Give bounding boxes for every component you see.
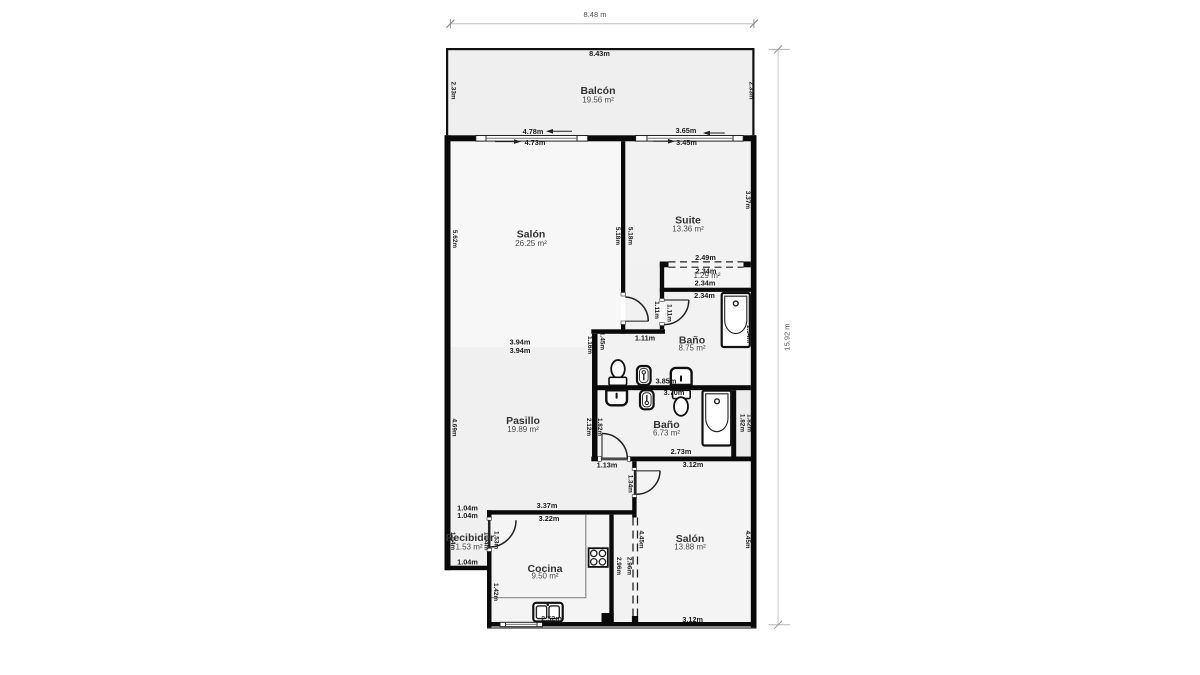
svg-text:1.54m: 1.54m (745, 325, 752, 343)
svg-text:4.73m: 4.73m (525, 138, 546, 147)
svg-text:1.53m: 1.53m (493, 531, 500, 549)
svg-text:8.75 m²: 8.75 m² (678, 344, 705, 353)
svg-text:1.11m: 1.11m (653, 301, 660, 319)
svg-text:2.34m: 2.34m (694, 291, 715, 300)
svg-text:9.50 m²: 9.50 m² (531, 572, 558, 581)
svg-text:4.78m: 4.78m (523, 127, 544, 136)
svg-text:13.36 m²: 13.36 m² (672, 225, 704, 234)
svg-text:4.45m: 4.45m (638, 530, 645, 548)
svg-text:1.13m: 1.13m (597, 461, 618, 470)
svg-text:2.33m: 2.33m (748, 81, 755, 99)
svg-text:19.89 m²: 19.89 m² (507, 425, 539, 434)
svg-text:1.04m: 1.04m (449, 532, 456, 550)
svg-text:2.33m: 2.33m (450, 81, 457, 99)
svg-text:3.22m: 3.22m (539, 514, 560, 523)
svg-text:4.45m: 4.45m (744, 530, 751, 548)
svg-text:3.37m: 3.37m (537, 501, 558, 510)
svg-text:19.56 m²: 19.56 m² (582, 96, 614, 105)
svg-text:2.96m: 2.96m (626, 557, 633, 575)
svg-text:2.73m: 2.73m (671, 447, 692, 456)
svg-text:1.82m: 1.82m (596, 418, 603, 436)
svg-text:6.73 m²: 6.73 m² (653, 429, 680, 438)
svg-text:3.37m: 3.37m (744, 191, 751, 209)
svg-text:1.82m: 1.82m (739, 414, 746, 432)
svg-text:5.62m: 5.62m (451, 230, 458, 248)
svg-text:3.94m: 3.94m (510, 346, 531, 355)
svg-text:3.70m: 3.70m (664, 388, 685, 397)
svg-text:1.11m: 1.11m (635, 334, 656, 343)
svg-text:26.25 m²: 26.25 m² (515, 239, 547, 248)
svg-text:5.18m: 5.18m (614, 227, 621, 245)
svg-text:1.04m: 1.04m (457, 511, 478, 520)
svg-text:8.48 m: 8.48 m (584, 10, 607, 19)
svg-text:3.45m: 3.45m (676, 138, 697, 147)
svg-text:2.34m: 2.34m (695, 279, 716, 288)
svg-text:2.52m: 2.52m (541, 614, 562, 623)
svg-text:2.96m: 2.96m (615, 557, 622, 575)
svg-text:4.69m: 4.69m (451, 418, 458, 436)
svg-text:1.11m: 1.11m (666, 304, 673, 322)
svg-text:13.88 m²: 13.88 m² (674, 543, 706, 552)
svg-text:2.49m: 2.49m (695, 253, 716, 262)
svg-text:3.65m: 3.65m (676, 126, 697, 135)
svg-text:1.82m: 1.82m (746, 414, 753, 432)
svg-text:1.04m: 1.04m (457, 557, 478, 566)
svg-text:1.42m: 1.42m (492, 583, 499, 601)
svg-text:3.12m: 3.12m (682, 615, 703, 624)
svg-text:2.34m: 2.34m (696, 267, 717, 276)
svg-text:1.16m: 1.16m (586, 336, 593, 354)
svg-text:5.18m: 5.18m (627, 227, 634, 245)
svg-text:8.43m: 8.43m (589, 49, 610, 58)
svg-text:1.04m: 1.04m (482, 532, 489, 550)
svg-text:2.12m: 2.12m (585, 418, 592, 436)
svg-text:1.53 m²: 1.53 m² (455, 543, 482, 552)
svg-text:1.34m: 1.34m (627, 475, 634, 493)
svg-text:1.45m: 1.45m (599, 332, 606, 350)
svg-text:15.92 m: 15.92 m (783, 323, 792, 350)
svg-text:3.85m: 3.85m (656, 377, 677, 386)
svg-text:3.12m: 3.12m (683, 460, 704, 469)
